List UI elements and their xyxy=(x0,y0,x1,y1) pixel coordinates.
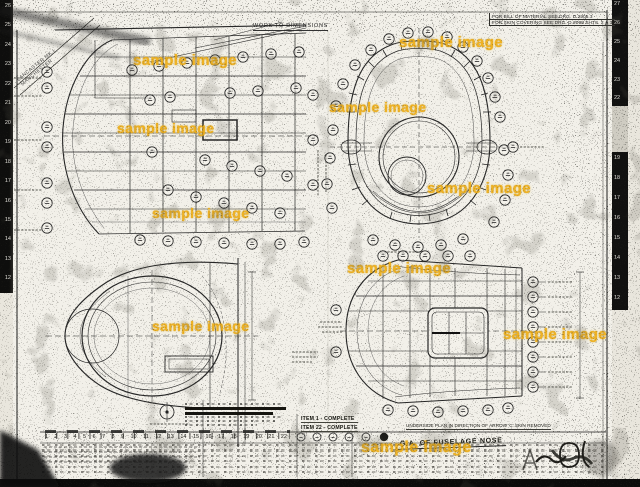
skin-covering-note: FOR SKIN COVERING SEE DRG. D.2098 SHTS. … xyxy=(489,20,615,27)
edge-ruler-number: 15 xyxy=(5,218,11,224)
edge-ruler-number: 21 xyxy=(5,101,11,107)
edge-ruler-number: 16 xyxy=(5,199,11,205)
scale-number: 18 xyxy=(231,434,237,440)
film-edge-right: 272625242322 1918171615141312 xyxy=(612,0,628,310)
watermark-text: sample image xyxy=(347,260,451,277)
edge-ruler-number: 26 xyxy=(5,4,11,10)
scale-number: 8 xyxy=(112,434,115,440)
right-ruler-numbers-top: 272625242322 xyxy=(614,2,626,102)
scale-number: 9 xyxy=(121,434,124,440)
schedule-row xyxy=(42,449,606,451)
left-ruler-numbers: 262524232221201918171615141312 xyxy=(0,4,13,282)
schedule-row xyxy=(42,466,606,468)
underside-plan-caption: UNDERSIDE PLAN IN DIRECTION OF ARROW 'C'… xyxy=(406,423,551,430)
edge-ruler-number: 18 xyxy=(5,160,11,166)
work-to-dimensions-note: WORK TO DIMENSIONS xyxy=(253,23,328,31)
scale-number: 7 xyxy=(102,434,105,440)
edge-ruler-number: 22 xyxy=(5,82,11,88)
schedule-row xyxy=(42,471,606,473)
scale-number: 1 xyxy=(45,434,48,440)
edge-ruler-number: 17 xyxy=(5,179,11,185)
watermark-text: sample image xyxy=(361,439,472,457)
scale-number: 5 xyxy=(83,434,86,440)
item-1-caption: ITEM 1 - COMPLETE xyxy=(301,416,358,423)
watermark-text: sample image xyxy=(133,52,237,69)
watermark-text: sample image xyxy=(399,34,503,51)
edge-ruler-number: 13 xyxy=(5,257,11,263)
schedule-row xyxy=(42,460,606,462)
item-22-caption: ITEM 22 - COMPLETE xyxy=(301,425,358,432)
edge-ruler-number: 15 xyxy=(614,236,620,242)
edge-ruler-number: 24 xyxy=(5,43,11,49)
scale-number: 16 xyxy=(205,434,211,440)
scale-number: 11 xyxy=(143,434,149,440)
watermark-text: sample image xyxy=(152,318,249,334)
edge-ruler-number: 14 xyxy=(5,237,11,243)
edge-ruler-number: 12 xyxy=(5,276,11,282)
scale-number: 19 xyxy=(243,434,249,440)
scale-number: 17 xyxy=(218,434,224,440)
watermark-text: sample image xyxy=(503,326,607,343)
bottom-film-bar xyxy=(0,479,640,487)
scale-number: 15 xyxy=(193,434,199,440)
film-edge-left: 262524232221201918171615141312 xyxy=(0,0,13,293)
scale-number: 22 xyxy=(281,434,287,440)
edge-ruler-number: 23 xyxy=(5,62,11,68)
item-captions: ITEM 1 - COMPLETE ITEM 22 - COMPLETE xyxy=(301,416,358,434)
edge-ruler-number: 13 xyxy=(614,276,620,282)
scale-number: 13 xyxy=(168,434,174,440)
edge-ruler-number: 22 xyxy=(614,96,620,102)
watermark-text: sample image xyxy=(117,120,214,136)
edge-ruler-number: 19 xyxy=(5,140,11,146)
edge-ruler-number: 12 xyxy=(614,296,620,302)
edge-ruler-number: 14 xyxy=(614,256,620,262)
right-ruler-numbers-bottom: 1918171615141312 xyxy=(614,156,626,302)
scale-number: 10 xyxy=(131,434,137,440)
edge-ruler-number: 25 xyxy=(5,23,11,29)
bottom-scale-numbers: 12345678910111213141516171819202122 xyxy=(45,434,287,440)
drawing-note-block xyxy=(185,403,291,428)
edge-ruler-number: 23 xyxy=(614,78,620,84)
watermark-text: sample image xyxy=(152,205,249,221)
scale-number: 4 xyxy=(74,434,77,440)
edge-ruler-number: 27 xyxy=(614,2,620,8)
edge-ruler-number: 18 xyxy=(614,176,620,182)
scale-number: 6 xyxy=(93,434,96,440)
edge-ruler-number: 24 xyxy=(614,59,620,65)
edge-ruler-number: 25 xyxy=(614,40,620,46)
edge-ruler-number: 20 xyxy=(5,121,11,127)
drawing-linework xyxy=(0,0,640,487)
edge-ruler-number: 19 xyxy=(614,156,620,162)
parts-schedule-rows xyxy=(42,444,606,476)
paper-field xyxy=(13,0,612,479)
scale-number: 2 xyxy=(55,434,58,440)
scale-number: 12 xyxy=(155,434,161,440)
watermark-text: sample image xyxy=(329,99,426,115)
schedule-row xyxy=(42,455,606,457)
edge-ruler-number: 16 xyxy=(614,216,620,222)
scale-number: 20 xyxy=(256,434,262,440)
film-gap xyxy=(612,106,628,152)
watermark-text: sample image xyxy=(427,180,531,197)
scanned-blueprint-sheet: 262524232221201918171615141312 272625242… xyxy=(0,0,640,487)
material-notes: FOR BILL OF MATERIAL SEE DRG. D.2305.3 F… xyxy=(489,13,615,26)
scale-number: 21 xyxy=(268,434,274,440)
schedule-row xyxy=(42,444,606,446)
scale-number: 14 xyxy=(180,434,186,440)
scale-number: 3 xyxy=(64,434,67,440)
edge-ruler-number: 17 xyxy=(614,196,620,202)
